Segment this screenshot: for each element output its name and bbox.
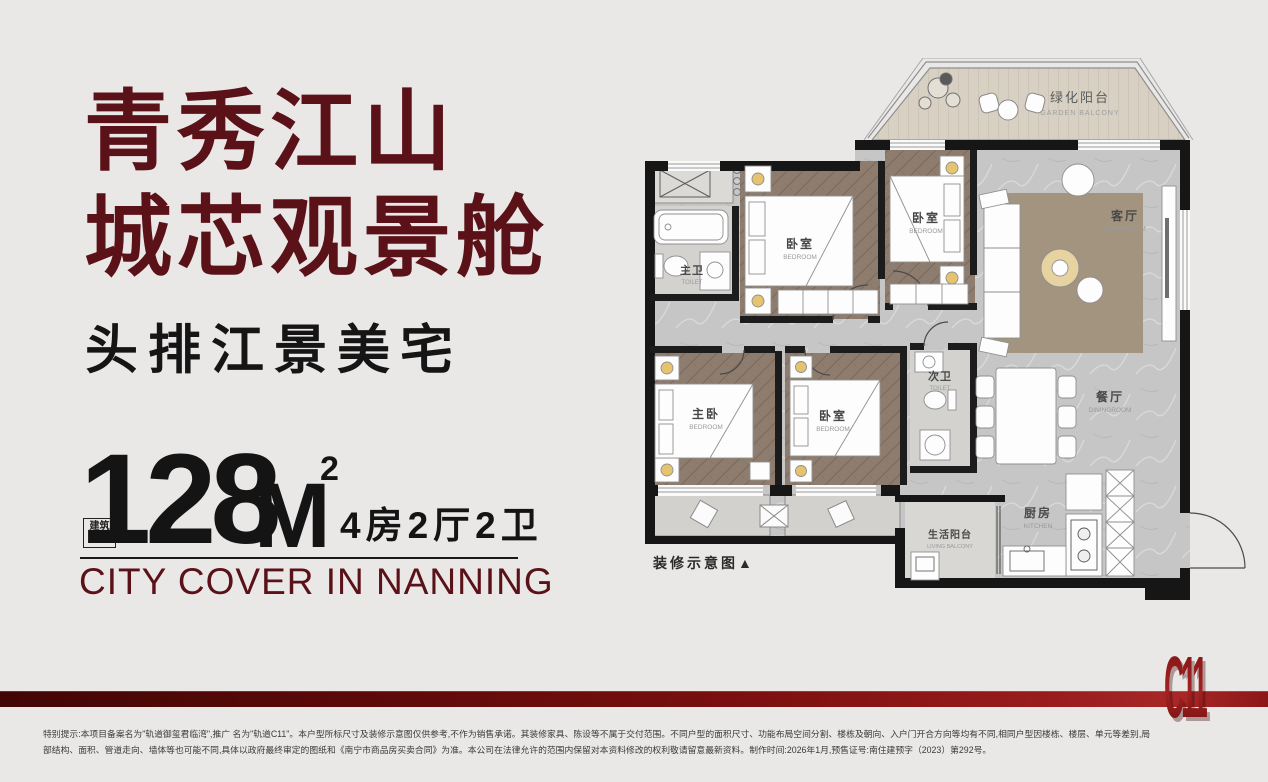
- plan-caption: 装修示意图▲: [652, 555, 755, 571]
- room-label-bedroom3-en: BEDROOM: [816, 426, 850, 433]
- disclaimer: 特别提示:本项目备案名为"轨道御玺君临湾",推广 名为"轨道C11"。本户型所标…: [43, 727, 1163, 758]
- poster-canvas: 青秀江山 城芯观景舱 头排江景美宅 建筑 面积 约 128 M 2 4房2厅2卫…: [0, 0, 1268, 782]
- c11-logo: C11 C11: [1158, 648, 1224, 732]
- room-label-second-bath-cn: 次卫: [928, 369, 952, 383]
- room-label-master-bedroom-cn: 主卧: [692, 406, 720, 421]
- room-label-bedroom3-cn: 卧室: [819, 408, 847, 423]
- room-label-kitchen-cn: 厨房: [1024, 505, 1052, 520]
- divider-rule: [80, 557, 518, 559]
- room-label-bedroom1-cn: 卧室: [786, 236, 814, 251]
- room-label-garden-balcony-en: GARDEN BALCONY: [1040, 110, 1119, 117]
- room-label-dining-cn: 餐厅: [1096, 389, 1124, 404]
- c11-logo-text: C11: [1164, 648, 1207, 732]
- room-label-kitchen-en: KITCHEN: [1024, 523, 1053, 530]
- headline-line2: 城芯观景舱: [84, 194, 549, 282]
- room-label-second-bath-en: TOILET: [930, 386, 951, 392]
- room-label-living-cn: 客厅: [1110, 208, 1139, 223]
- room-label-dining-en: DININGROOM: [1089, 407, 1132, 414]
- room-label-master-bedroom-en: BEDROOM: [689, 424, 723, 431]
- floorplan-drawing: 绿化阳台 GARDEN BALCONY: [628, 58, 1253, 610]
- room-label-garden-balcony-cn: 绿化阳台: [1050, 90, 1110, 105]
- tagline-en: CITY COVER IN NANNING: [79, 563, 554, 600]
- footer-red-bar: [0, 691, 1268, 707]
- room-label-living-en: LIVINGROOM: [1104, 226, 1146, 233]
- area-value: 128: [80, 436, 276, 564]
- room-label-living-balcony-en: LIVING BALCONY: [927, 544, 973, 550]
- room-label-master-bath-en: TOILET: [682, 280, 703, 286]
- disclaimer-line2: 部结构、面积、管道走向、墙体等也可能不同,具体以政府最终审定的图纸和《南宁市商品…: [43, 743, 1163, 759]
- area-unit-sup: 2: [320, 452, 339, 486]
- garden-balcony: 绿化阳台 GARDEN BALCONY: [864, 58, 1193, 140]
- room-label-bedroom2-en: BEDROOM: [909, 228, 943, 235]
- room-label-living-balcony-cn: 生活阳台: [928, 528, 972, 541]
- room-layout: 4房2厅2卫: [340, 507, 543, 544]
- headline-line1: 青秀江山: [84, 88, 456, 176]
- disclaimer-line1: 特别提示:本项目备案名为"轨道御玺君临湾",推广 名为"轨道C11"。本户型所标…: [43, 727, 1163, 743]
- room-label-master-bath-cn: 主卫: [680, 263, 704, 277]
- room-label-bedroom1-en: BEDROOM: [783, 254, 817, 261]
- subtitle: 头排江景美宅: [85, 324, 463, 377]
- room-label-bedroom2-cn: 卧室: [912, 210, 940, 225]
